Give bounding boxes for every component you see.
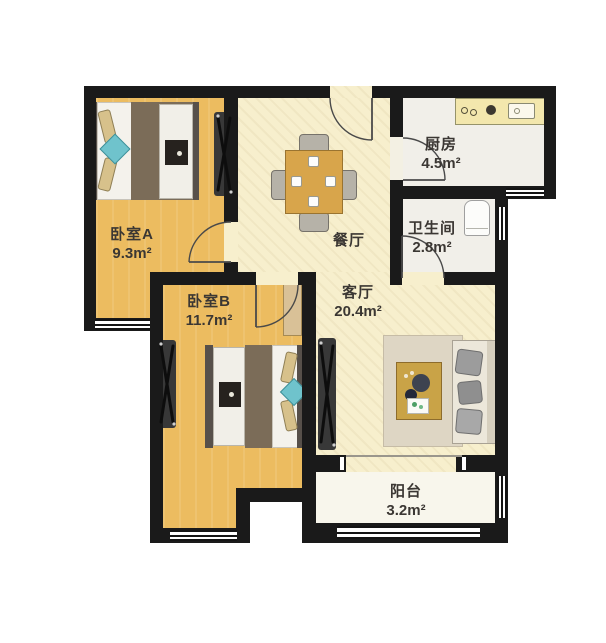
room-label-bedroom-a: 卧室A 9.3m² [94, 226, 170, 264]
room-label-bedroom-b: 卧室B 11.7m² [166, 293, 252, 331]
place-setting [325, 176, 336, 187]
room-label-kitchen: 厨房 4.5m² [406, 136, 476, 174]
kitchen-sink [508, 103, 535, 119]
plant-sprig [419, 405, 423, 409]
sofa-cushion [455, 408, 483, 435]
dining-chair [299, 212, 329, 232]
room-label-dining: 餐厅 [318, 232, 380, 251]
sofa-cushion [454, 348, 483, 376]
wardrobe-knob [229, 392, 234, 397]
wall [302, 272, 316, 543]
wall [224, 262, 238, 285]
room-name: 卫生间 [392, 220, 472, 239]
room-label-living: 客厅 20.4m² [318, 284, 398, 322]
balcony-sill-line [346, 455, 462, 457]
place-setting [291, 176, 302, 187]
window [170, 530, 237, 541]
door-opening [256, 272, 298, 285]
sofa-cushion [457, 380, 483, 405]
stove-burner [461, 107, 468, 114]
window [337, 526, 480, 539]
room-bedroom-b-floor [163, 488, 236, 528]
room-area: 3.2m² [366, 502, 446, 521]
room-label-bathroom: 卫生间 2.8m² [392, 220, 472, 258]
door-frame-notch [462, 457, 466, 470]
room-area: 11.7m² [166, 312, 252, 331]
wall [84, 86, 96, 331]
room-name: 餐厅 [318, 232, 380, 251]
cabinet [283, 278, 302, 336]
plant-sprig [412, 402, 417, 407]
wardrobe-knob [177, 151, 182, 156]
room-name: 卧室B [166, 293, 252, 312]
sofa-back [487, 341, 495, 443]
room-area: 2.8m² [392, 239, 472, 258]
stove-burner [470, 109, 477, 116]
wall [544, 86, 556, 199]
room-name: 阳台 [366, 483, 446, 502]
window [506, 188, 544, 198]
decor-dot [404, 374, 408, 378]
wall [150, 272, 163, 543]
room-area: 9.3m² [94, 245, 170, 264]
room-name: 客厅 [318, 284, 398, 303]
wardrobe-side [205, 345, 213, 448]
window [497, 476, 507, 518]
window [497, 207, 507, 240]
room-name: 厨房 [406, 136, 476, 155]
stove-burner [486, 105, 496, 115]
bed-blanket [245, 345, 272, 448]
room-name: 卧室A [94, 226, 170, 245]
room-area: 20.4m² [318, 303, 398, 322]
radiator [318, 338, 336, 450]
place-setting [308, 196, 319, 207]
door-frame-notch [340, 457, 344, 470]
tray [407, 398, 429, 414]
door-opening [402, 272, 444, 285]
door-opening [224, 222, 238, 262]
room-label-balcony: 阳台 3.2m² [366, 483, 446, 521]
door-opening [390, 137, 403, 180]
entry-opening [330, 86, 372, 98]
bed-footboard [193, 102, 199, 200]
sink-drain [514, 108, 520, 114]
window [95, 319, 150, 330]
floor-plan: 卧室A 9.3m² 卧室B 11.7m² 餐厅 厨房 4.5m² 卫生间 2.8… [0, 0, 606, 643]
wall [390, 86, 403, 137]
room-bedroom-a-floor [96, 272, 150, 318]
room-area: 4.5m² [406, 155, 476, 174]
decor-dot [410, 371, 414, 375]
place-setting [308, 156, 319, 167]
wall [224, 86, 238, 222]
wall [84, 86, 330, 98]
